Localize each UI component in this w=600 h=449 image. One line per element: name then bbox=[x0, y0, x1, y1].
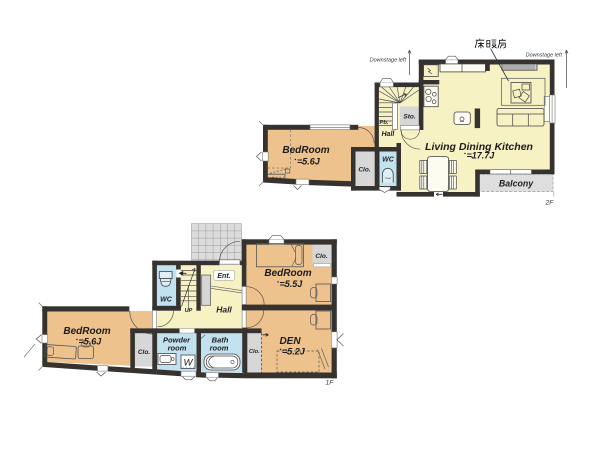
svg-text:Hall: Hall bbox=[382, 131, 396, 138]
svg-text:BedRoom: BedRoom bbox=[264, 268, 311, 279]
svg-text:=5.6J: =5.6J bbox=[297, 157, 321, 167]
svg-text:=5.5J: =5.5J bbox=[280, 279, 304, 289]
svg-text:Pb.: Pb. bbox=[380, 120, 389, 126]
svg-text:=5.6J: =5.6J bbox=[79, 337, 103, 347]
svg-text:Balcony: Balcony bbox=[499, 179, 534, 189]
svg-text:Sto.: Sto. bbox=[403, 114, 415, 121]
svg-text:1F: 1F bbox=[326, 380, 335, 387]
svg-text:=5.2J: =5.2J bbox=[282, 347, 306, 357]
svg-text:DEN: DEN bbox=[279, 336, 301, 347]
svg-text:BedRoom: BedRoom bbox=[282, 145, 329, 156]
svg-text:Ent.: Ent. bbox=[217, 273, 230, 280]
svg-text:2F: 2F bbox=[545, 200, 555, 207]
svg-text:Downstage left: Downstage left bbox=[526, 53, 563, 59]
svg-text:Clo.: Clo. bbox=[315, 253, 327, 260]
svg-text:BedRoom: BedRoom bbox=[63, 326, 110, 337]
svg-text:room: room bbox=[168, 344, 187, 353]
svg-text:Downstage left: Downstage left bbox=[370, 58, 407, 64]
svg-text:Clo.: Clo. bbox=[358, 167, 370, 174]
svg-text:=17.7J: =17.7J bbox=[467, 151, 496, 161]
svg-text:room: room bbox=[210, 344, 229, 353]
svg-text:Clo.: Clo. bbox=[249, 349, 260, 355]
svg-text:UP: UP bbox=[185, 308, 193, 314]
svg-text:Clo.: Clo. bbox=[138, 349, 150, 356]
svg-text:WC: WC bbox=[160, 297, 173, 304]
svg-text:WC: WC bbox=[382, 157, 395, 164]
svg-text:W: W bbox=[184, 358, 194, 369]
svg-text:Hall: Hall bbox=[216, 305, 232, 315]
